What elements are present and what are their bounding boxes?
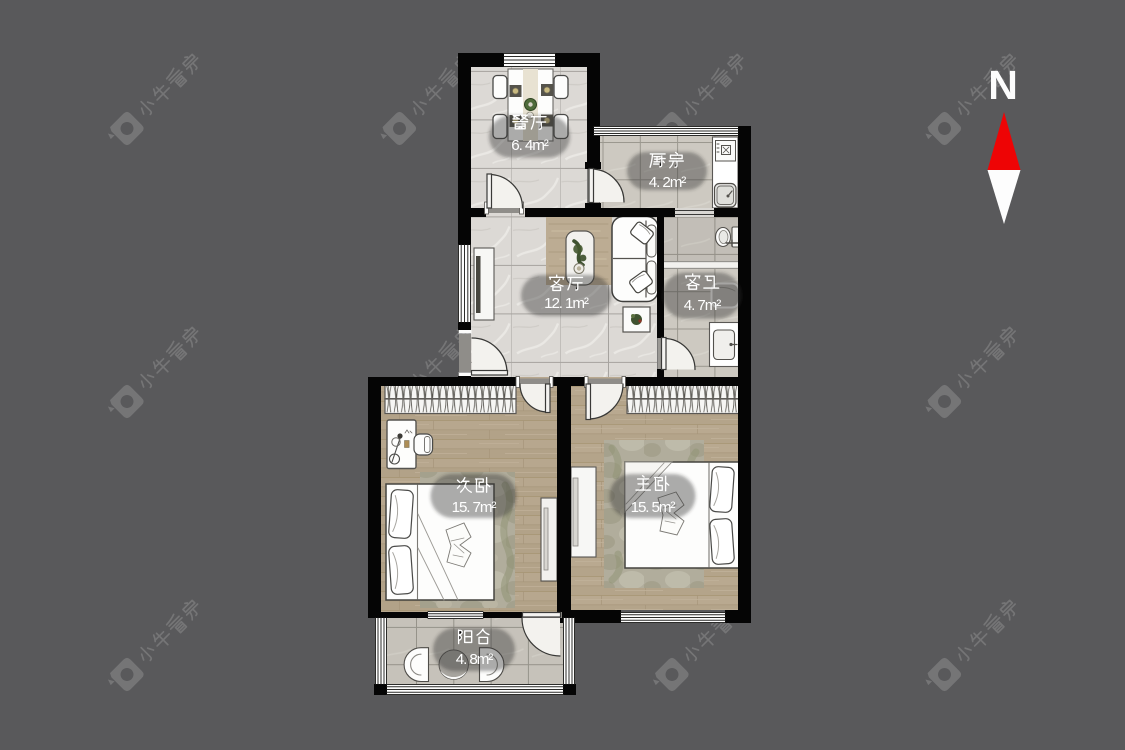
svg-text:4. 7m²: 4. 7m² [684,297,721,314]
svg-text:4. 8m²: 4. 8m² [456,651,493,668]
svg-text:6. 4m²: 6. 4m² [511,137,548,154]
svg-text:15. 5m²: 15. 5m² [631,499,676,516]
svg-text:15. 7m²: 15. 7m² [452,499,497,516]
svg-text:12. 1m²: 12. 1m² [544,295,589,312]
svg-text:N: N [988,62,1018,108]
svg-text:4. 2m²: 4. 2m² [649,174,686,191]
